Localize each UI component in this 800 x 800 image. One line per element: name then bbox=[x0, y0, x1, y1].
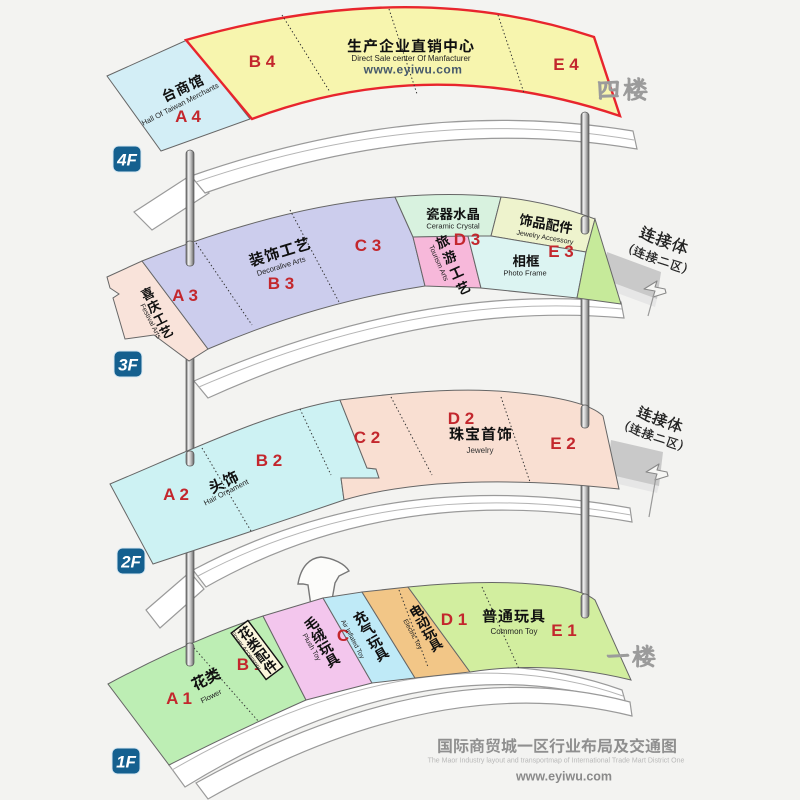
svg-text:C 2: C 2 bbox=[354, 428, 380, 447]
svg-text:Photo Frame: Photo Frame bbox=[503, 269, 546, 278]
svg-text:A 4: A 4 bbox=[175, 107, 201, 126]
svg-text:www.eyiwu.com: www.eyiwu.com bbox=[515, 770, 612, 784]
svg-text:D 3: D 3 bbox=[454, 230, 480, 249]
svg-text:Jewelry: Jewelry bbox=[466, 446, 493, 455]
svg-text:D 2: D 2 bbox=[448, 409, 474, 428]
svg-text:A 1: A 1 bbox=[166, 689, 192, 708]
svg-text:A 3: A 3 bbox=[172, 286, 198, 305]
svg-text:www.eyiwu.com: www.eyiwu.com bbox=[363, 62, 463, 76]
svg-text:A 2: A 2 bbox=[163, 485, 189, 504]
svg-text:D 1: D 1 bbox=[441, 610, 467, 629]
svg-text:C 3: C 3 bbox=[355, 236, 381, 255]
svg-text:E 1: E 1 bbox=[551, 621, 577, 640]
svg-text:The Maor Industry layout and t: The Maor Industry layout and transportma… bbox=[428, 758, 685, 765]
svg-text:3F: 3F bbox=[118, 356, 138, 375]
svg-text:E 4: E 4 bbox=[553, 55, 579, 74]
svg-text:4F: 4F bbox=[116, 151, 137, 170]
svg-text:Common Toy: Common Toy bbox=[491, 627, 538, 636]
svg-text:2F: 2F bbox=[120, 553, 141, 572]
svg-text:1F: 1F bbox=[116, 753, 136, 772]
svg-text:B 4: B 4 bbox=[249, 52, 276, 71]
svg-text:B 3: B 3 bbox=[268, 274, 294, 293]
svg-text:E 3: E 3 bbox=[548, 242, 574, 261]
svg-text:B 2: B 2 bbox=[256, 451, 282, 470]
svg-text:E 2: E 2 bbox=[550, 434, 576, 453]
